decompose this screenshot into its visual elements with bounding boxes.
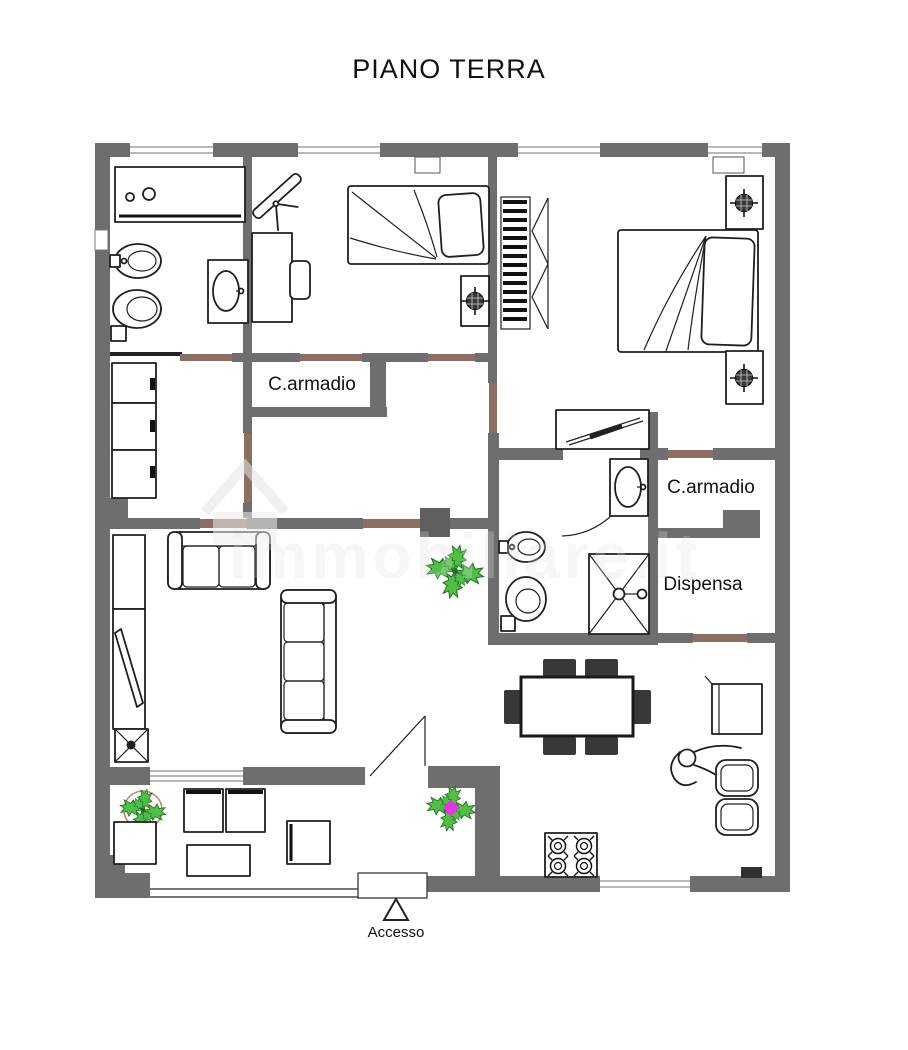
- sink-vanity: [208, 260, 248, 323]
- kitchen-dining: [504, 659, 762, 877]
- door-icon: [668, 450, 713, 458]
- door-icon: [428, 354, 475, 361]
- label-closet-right: C.armadio: [667, 477, 755, 498]
- door-icon: [300, 354, 362, 361]
- wall-cabinet: [113, 535, 148, 762]
- double-sink: [716, 760, 758, 835]
- stove: [545, 833, 597, 877]
- floor-plan-drawing: PIANO TERRA: [0, 0, 908, 1050]
- double-bed: [618, 230, 758, 352]
- sink-vanity: [610, 459, 648, 516]
- bidet: [110, 244, 161, 278]
- chair: [633, 690, 651, 724]
- drawing-board: [251, 172, 316, 235]
- bathtub: [115, 167, 245, 222]
- terrace: [114, 784, 477, 876]
- chair: [585, 659, 618, 677]
- single-bed: [348, 186, 489, 264]
- counter: [705, 676, 762, 734]
- sofa-3-seat: [281, 590, 336, 733]
- door-icon: [693, 634, 747, 642]
- armchair: [287, 821, 330, 864]
- window-icon: [130, 143, 213, 157]
- floor-plan-page: PIANO TERRA: [0, 0, 908, 1050]
- window-icon: [600, 876, 690, 892]
- chair: [543, 737, 576, 755]
- window-icon: [518, 143, 600, 157]
- wardrobe-cabinet: [112, 363, 156, 403]
- wardrobe-cabinet: [112, 403, 156, 450]
- door-icon: [489, 383, 497, 433]
- page-title: PIANO TERRA: [352, 54, 546, 84]
- window-icon: [150, 767, 243, 785]
- nightstand: [726, 351, 763, 404]
- nightstand: [461, 276, 489, 326]
- door-thresholds: [180, 354, 747, 642]
- entrance-door: [358, 873, 427, 898]
- armchair: [114, 822, 156, 864]
- radiator-shelf: [556, 410, 649, 449]
- coffee-table: [187, 845, 250, 876]
- desk-and-chair: [252, 233, 310, 322]
- burner-icon: [548, 836, 568, 856]
- open-wardrobe: [501, 197, 548, 329]
- triangle-icon: [384, 899, 408, 920]
- window-icon: [298, 143, 380, 157]
- nightstand: [726, 176, 763, 229]
- burner-icon: [574, 856, 594, 876]
- window-sill: [415, 157, 440, 173]
- toilet: [111, 290, 161, 341]
- dining-table-set: [504, 659, 651, 755]
- window-sill: [95, 230, 108, 250]
- entrance-marker: Accesso: [368, 899, 425, 941]
- chair: [543, 659, 576, 677]
- label-entrance: Accesso: [368, 924, 425, 941]
- bathroom-main: [110, 167, 248, 341]
- door-icon: [180, 354, 232, 361]
- burner-icon: [548, 856, 568, 876]
- window-sill: [713, 157, 744, 173]
- bedroom-single: [251, 172, 489, 326]
- watermark-text: immobiliare.it: [229, 520, 701, 592]
- label-closet-left: C.armadio: [268, 374, 356, 395]
- terrace-railing: [150, 889, 360, 897]
- window-icon: [708, 143, 762, 157]
- entrance-door-leaf: [370, 716, 425, 776]
- bedroom-double: [501, 176, 763, 449]
- burner-icon: [574, 836, 594, 856]
- bench-2-seat: [184, 789, 265, 832]
- entry-plant: [425, 784, 478, 833]
- storage-room: [112, 363, 156, 498]
- chair: [585, 737, 618, 755]
- chair: [504, 690, 522, 724]
- dining-table: [521, 677, 633, 736]
- wardrobe-cabinet: [112, 450, 156, 498]
